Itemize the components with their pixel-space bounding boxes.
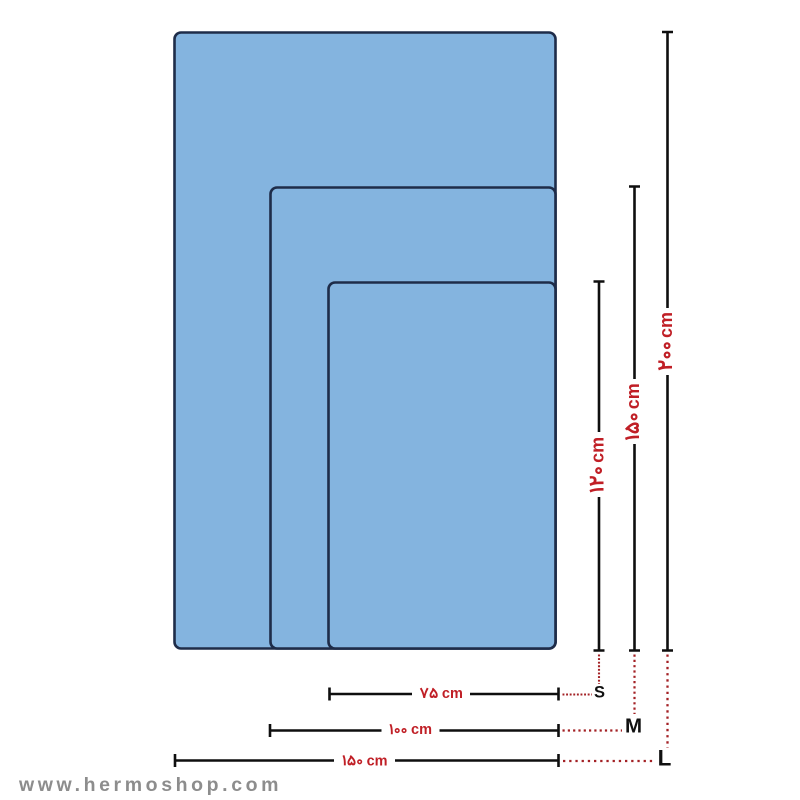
svg-text:cm: cm bbox=[588, 437, 608, 463]
svg-text:cm: cm bbox=[411, 722, 432, 738]
svg-text:cm: cm bbox=[442, 686, 463, 702]
svg-text:cm: cm bbox=[367, 753, 388, 769]
svg-text:cm: cm bbox=[656, 312, 676, 338]
svg-text:S: S bbox=[594, 684, 605, 702]
svg-text:L: L bbox=[658, 746, 672, 771]
svg-text:M: M bbox=[625, 715, 642, 738]
svg-text:www.hermoshop.com: www.hermoshop.com bbox=[18, 774, 282, 796]
svg-text:cm: cm bbox=[623, 383, 643, 409]
